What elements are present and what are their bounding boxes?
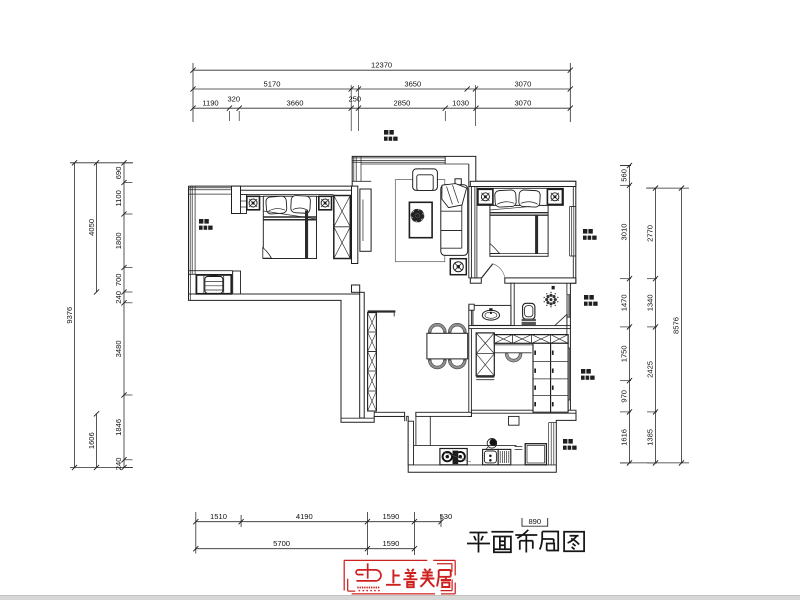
svg-text:240: 240 [114, 291, 123, 304]
svg-text:1606: 1606 [87, 432, 96, 449]
svg-text:530: 530 [440, 512, 453, 521]
svg-text:1190: 1190 [202, 99, 218, 108]
svg-text:700: 700 [114, 273, 123, 286]
svg-text:240: 240 [114, 458, 123, 471]
svg-text:1510: 1510 [210, 512, 227, 521]
svg-text:1470: 1470 [620, 294, 629, 311]
svg-text:1030: 1030 [452, 99, 469, 108]
svg-text:4050: 4050 [87, 219, 96, 236]
svg-text:5700: 5700 [273, 539, 290, 548]
svg-text:1800: 1800 [114, 232, 123, 249]
svg-text:5170: 5170 [264, 79, 281, 88]
svg-text:250: 250 [348, 95, 361, 104]
svg-text:970: 970 [620, 390, 629, 403]
svg-text:8576: 8576 [672, 317, 681, 334]
svg-text:2425: 2425 [646, 361, 655, 378]
svg-text:2770: 2770 [646, 225, 655, 242]
svg-text:4190: 4190 [296, 512, 313, 521]
svg-text:2850: 2850 [393, 99, 410, 108]
svg-text:320: 320 [227, 95, 240, 104]
svg-text:3480: 3480 [114, 340, 123, 357]
svg-text:3070: 3070 [514, 99, 531, 108]
svg-text:12370: 12370 [371, 61, 392, 70]
svg-text:690: 690 [114, 167, 123, 180]
svg-text:3010: 3010 [620, 224, 629, 241]
svg-text:1590: 1590 [382, 539, 399, 548]
svg-text:3650: 3650 [404, 79, 421, 88]
svg-text:1846: 1846 [114, 419, 123, 436]
svg-text:1385: 1385 [646, 429, 655, 446]
svg-text:1340: 1340 [646, 294, 655, 311]
svg-text:3070: 3070 [514, 79, 531, 88]
svg-text:9376: 9376 [65, 307, 74, 324]
svg-text:1750: 1750 [620, 345, 629, 362]
svg-text:3660: 3660 [287, 99, 304, 108]
svg-text:890: 890 [528, 517, 541, 526]
svg-text:560: 560 [620, 169, 629, 182]
svg-text:1100: 1100 [114, 190, 123, 206]
svg-text:1616: 1616 [620, 429, 629, 446]
svg-text:1590: 1590 [382, 512, 399, 521]
